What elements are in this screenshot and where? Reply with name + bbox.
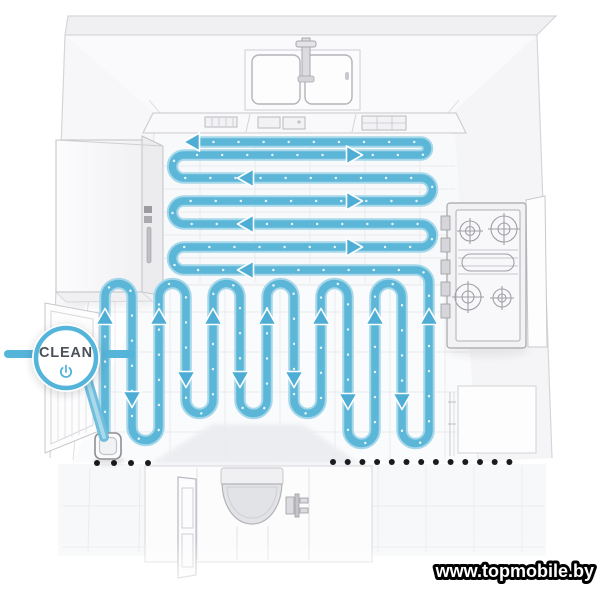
boundary-dot	[330, 459, 336, 465]
boundary-dot	[359, 459, 365, 465]
clean-label: CLEAN	[39, 345, 93, 361]
boundary-dot	[433, 459, 439, 465]
gas-stove	[441, 196, 547, 357]
floorplan-diagram: CLEAN www.topmobile.by	[0, 0, 600, 600]
counter-tray	[283, 117, 305, 129]
counter-tray	[258, 117, 280, 128]
countertop	[143, 113, 466, 133]
boundary-dot	[492, 459, 498, 465]
boundary-dot	[404, 459, 410, 465]
boundary-dot	[506, 459, 512, 465]
boundary-dot	[448, 459, 454, 465]
boundary-dot	[462, 459, 468, 465]
boundary-dot	[374, 459, 380, 465]
right-wall-cabinet	[448, 386, 536, 456]
dish-rack	[205, 117, 237, 127]
boundary-dot	[418, 459, 424, 465]
sink-basin-left	[252, 55, 300, 104]
boundary-dot	[128, 460, 134, 466]
boundary-dot	[345, 459, 351, 465]
boundary-dot	[477, 459, 483, 465]
boundary-dot	[145, 460, 151, 466]
robot-vacuum	[93, 433, 125, 465]
speed-dash-right	[103, 350, 135, 358]
watermark: www.topmobile.by	[435, 561, 594, 581]
scene: CLEAN www.topmobile.by	[0, 0, 600, 600]
boundary-dot	[389, 459, 395, 465]
